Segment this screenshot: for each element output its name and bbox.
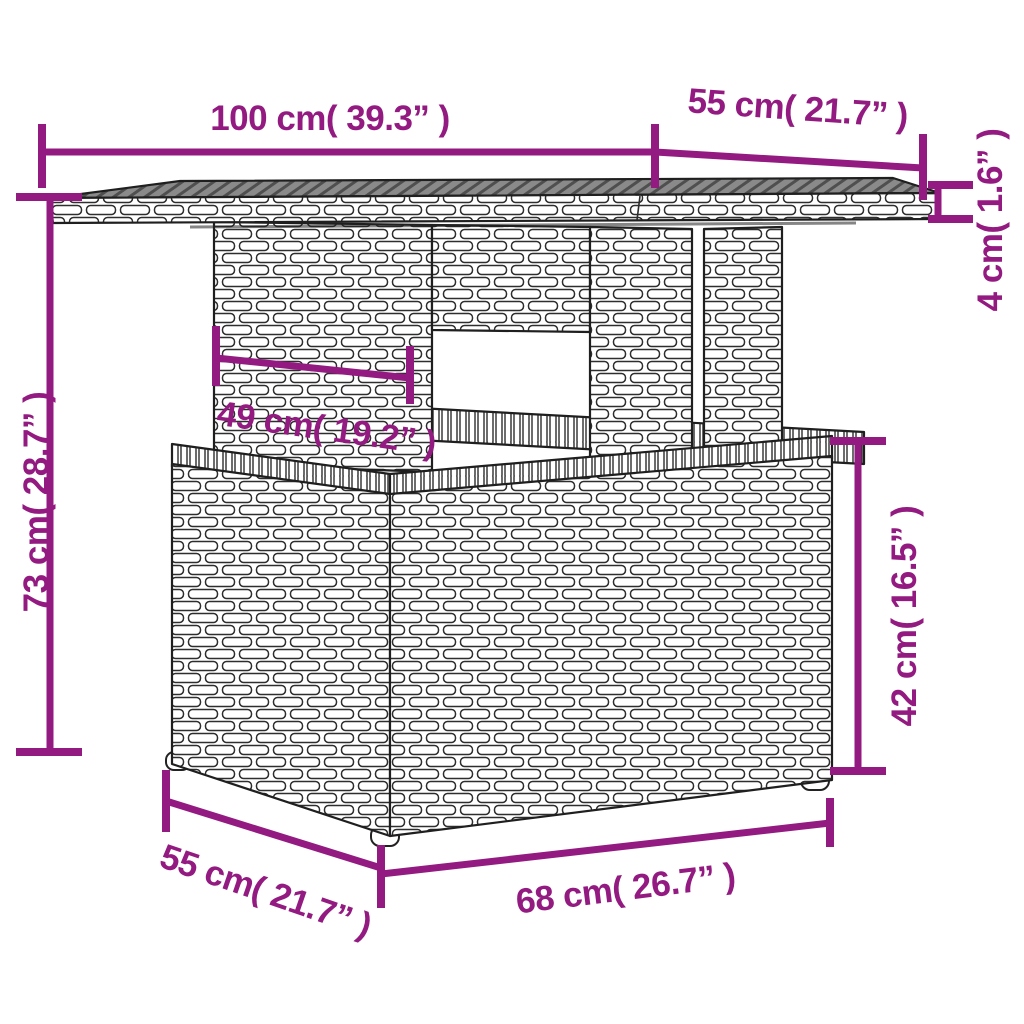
dim-label-base-width: 68 cm( 26.7” ) bbox=[514, 856, 738, 922]
dimension-base-height: 42 cm( 16.5” ) bbox=[830, 441, 924, 771]
tabletop-edge bbox=[50, 193, 940, 223]
pedestal-right-column-front bbox=[590, 227, 692, 468]
dimension-top-thickness: 4 cm( 1.6” ) bbox=[928, 129, 1010, 312]
pedestal-top-beam bbox=[432, 225, 590, 332]
dimension-diagram-page: 100 cm( 39.3” ) 55 cm( 21.7” ) 4 cm( 1.6… bbox=[0, 0, 1024, 1024]
dim-label-base-height: 42 cm( 16.5” ) bbox=[885, 506, 924, 727]
dim-label-top-depth: 55 cm( 21.7” ) bbox=[686, 81, 909, 135]
dim-label-top-thickness: 4 cm( 1.6” ) bbox=[971, 129, 1010, 312]
product-dimension-diagram: 100 cm( 39.3” ) 55 cm( 21.7” ) 4 cm( 1.6… bbox=[0, 0, 1024, 1024]
base-front-face bbox=[390, 456, 832, 836]
pedestal-right-column-side bbox=[704, 227, 782, 458]
dim-label-top-length: 100 cm( 39.3” ) bbox=[210, 99, 450, 138]
dim-label-overall-height: 73 cm( 28.7” ) bbox=[17, 392, 56, 613]
base-left-face bbox=[172, 464, 390, 836]
table-illustration bbox=[50, 178, 940, 846]
dimension-overall-height: 73 cm( 28.7” ) bbox=[16, 197, 82, 752]
dimension-top-length: 100 cm( 39.3” ) bbox=[42, 99, 655, 188]
